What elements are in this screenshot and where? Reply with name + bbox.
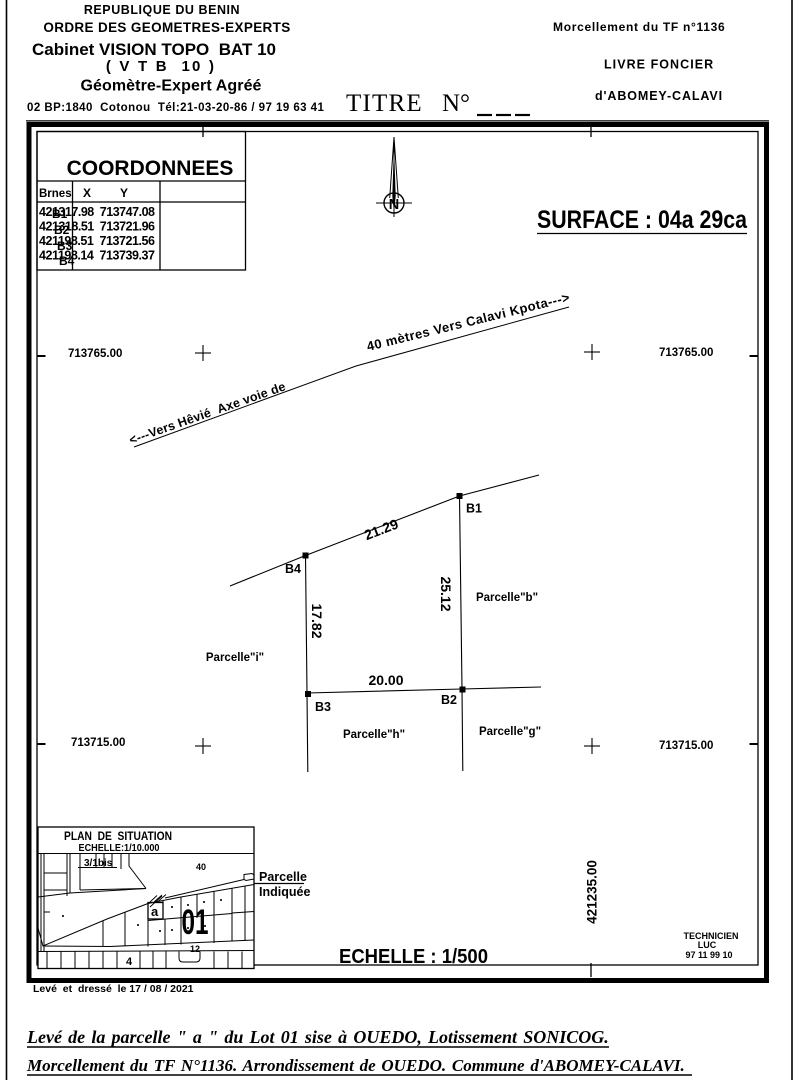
svg-text:B1: B1 [52,207,68,221]
svg-text:B2: B2 [441,693,457,707]
svg-text:Indiquée: Indiquée [259,885,310,899]
svg-text:( V T B 10 ): ( V T B 10 ) [106,58,216,75]
svg-text:d'ABOMEY-CALAVI: d'ABOMEY-CALAVI [595,89,723,103]
svg-text:B3: B3 [57,239,73,253]
svg-text:Parcelle: Parcelle [259,870,307,884]
svg-text:713715.00: 713715.00 [71,737,125,749]
svg-text:713765.00: 713765.00 [659,347,713,359]
svg-text:N°: N° [442,90,470,117]
svg-text:ECHELLE : 1/500: ECHELLE : 1/500 [339,946,488,968]
svg-text:Morcellement du TF n°1136: Morcellement du TF n°1136 [553,20,725,34]
svg-text:Parcelle"i": Parcelle"i" [206,652,264,664]
svg-text:Levé et dressé le 17 / 08 /: Levé et dressé le 17 / 08 / 2021 [33,983,194,995]
svg-text:Levé de la parcelle " a " du L: Levé de la parcelle " a " du Lot 01 sise… [26,1027,609,1047]
svg-text:Brnes: Brnes [39,188,72,200]
svg-text:Parcelle"b": Parcelle"b" [476,592,538,604]
svg-text:ORDRE DES GEOMETRES-EXPERTS: ORDRE DES GEOMETRES-EXPERTS [43,20,290,35]
svg-text:4: 4 [126,956,133,968]
svg-text:N: N [389,197,399,213]
svg-text:3/1bis: 3/1bis [84,858,113,869]
svg-text:COORDONNEES: COORDONNEES [67,157,234,180]
svg-text:21.29: 21.29 [362,516,401,544]
svg-text:B1: B1 [466,502,482,516]
svg-text:Géomètre-Expert Agréé: Géomètre-Expert Agréé [80,78,261,95]
svg-text:B4: B4 [59,254,75,268]
svg-text:REPUBLIQUE DU BENIN: REPUBLIQUE DU BENIN [84,3,240,17]
svg-text:20.00: 20.00 [368,672,403,688]
svg-text:12: 12 [190,944,200,954]
svg-text:SURFACE : 04a 29ca: SURFACE : 04a 29ca [537,206,748,234]
svg-text:Y: Y [120,186,128,200]
svg-text:Cabinet VISION TOPO BAT 10: Cabinet VISION TOPO BAT 10 [32,40,276,59]
svg-text:17.82: 17.82 [309,603,325,638]
svg-text:Parcelle"g": Parcelle"g" [479,726,541,738]
svg-text:02 BP:1840 Cotonou Tél:21-03: 02 BP:1840 Cotonou Tél:21-03-20-86 / 97 … [27,102,325,114]
svg-text:421235.00: 421235.00 [585,860,600,924]
svg-text:25.12: 25.12 [438,576,454,611]
svg-text:<---Vers Hêvié Axe voie de: <---Vers Hêvié Axe voie de [127,379,287,447]
svg-text:LUC: LUC [698,940,717,950]
svg-text:TITRE: TITRE [346,90,423,117]
svg-text:X: X [83,186,91,200]
svg-text:B4: B4 [285,562,301,576]
svg-text:B2: B2 [54,223,70,237]
svg-text:97 11 99 10: 97 11 99 10 [685,950,732,960]
svg-text:ECHELLE:1/10.000: ECHELLE:1/10.000 [79,842,160,854]
svg-text:LIVRE FONCIER: LIVRE FONCIER [604,58,714,72]
svg-text:B3: B3 [315,700,331,714]
svg-text:40: 40 [196,862,206,872]
svg-text:01: 01 [182,903,209,942]
svg-text:Morcellement du TF N°1136. Arr: Morcellement du TF N°1136. Arrondissemen… [26,1056,685,1075]
svg-text:Parcelle"h": Parcelle"h" [343,729,405,741]
svg-text:713715.00: 713715.00 [659,740,713,752]
svg-text:a: a [151,904,159,919]
svg-text:40 mètres Vers Calavi Kpota---: 40 mètres Vers Calavi Kpota---> [365,290,571,354]
svg-text:713765.00: 713765.00 [68,348,122,360]
